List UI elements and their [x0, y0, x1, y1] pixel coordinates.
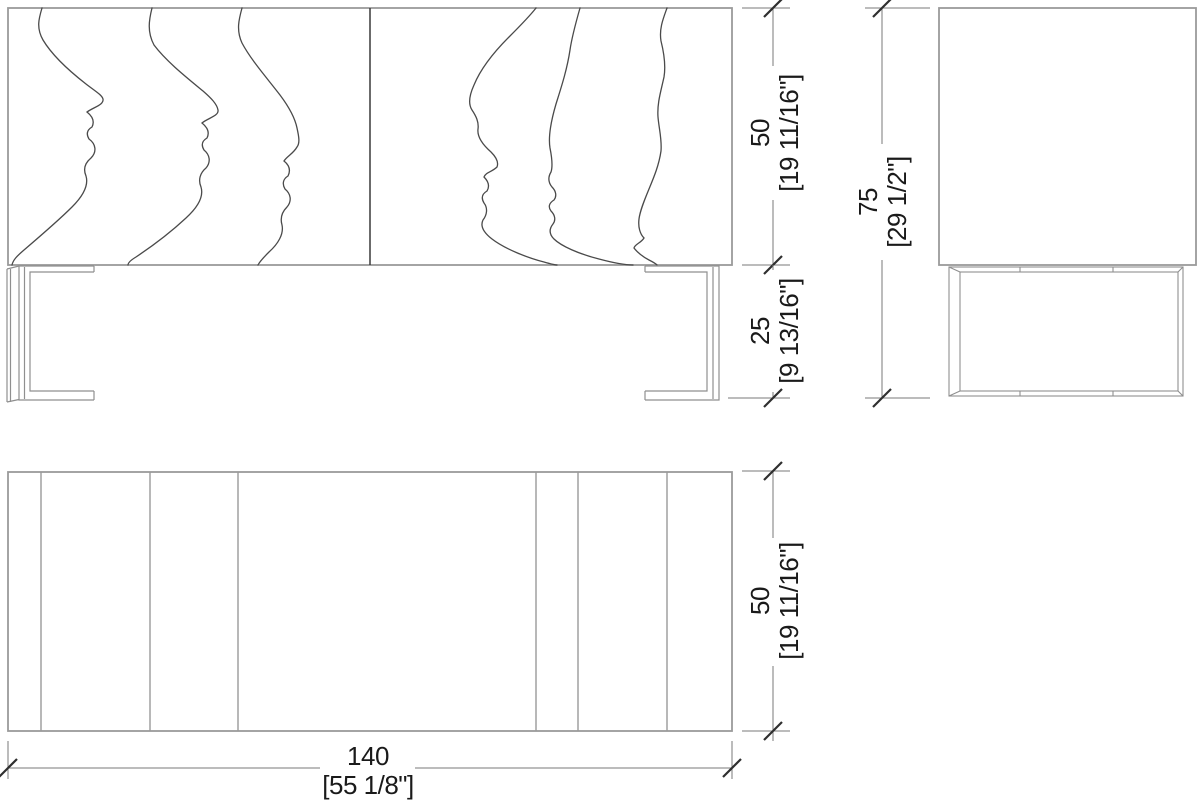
right-leg-outer-contour [645, 266, 719, 400]
dim-total-height: 75 [29 1/2"] [853, 0, 930, 407]
face-profile-curve-6 [634, 8, 667, 265]
dim-depth-imperial: [19 11/16"] [774, 542, 804, 659]
side-body-outline [939, 8, 1196, 265]
face-profile-curve-4 [470, 8, 557, 265]
side-leg-frame-joints [1020, 267, 1113, 396]
front-right-leg [645, 266, 719, 400]
technical-drawing-canvas: 50 [19 11/16"] 25 [9 13/16"] 75 [29 1/2"… [0, 0, 1200, 800]
dim-cabinet-height-metric: 50 [745, 119, 775, 147]
dim-cabinet-height: 50 [19 11/16"] [742, 0, 804, 274]
dim-leg-height-imperial: [9 13/16"] [774, 278, 804, 383]
dim-leg-height: 25 [9 13/16"] [728, 265, 804, 407]
dim-total-height-imperial: [29 1/2"] [882, 156, 912, 247]
dim-total-height-metric: 75 [853, 188, 883, 216]
side-leg-frame-outer [949, 267, 1183, 396]
front-face-carvings [12, 8, 667, 265]
left-leg-top-miter [7, 266, 19, 269]
left-leg-inner-contour [30, 272, 94, 391]
front-left-leg [7, 266, 94, 402]
side-leg-frame [949, 267, 1183, 396]
dim-width-imperial: [55 1/8"] [322, 770, 413, 800]
dim-depth: 50 [19 11/16"] [742, 462, 804, 741]
side-view [939, 8, 1196, 396]
dimensions: 50 [19 11/16"] 25 [9 13/16"] 75 [29 1/2"… [0, 0, 930, 800]
dim-depth-metric: 50 [745, 587, 775, 615]
dim-leg-height-metric: 25 [745, 317, 775, 345]
face-profile-curve-5 [549, 8, 633, 265]
furniture-drawing-svg: 50 [19 11/16"] 25 [9 13/16"] 75 [29 1/2"… [0, 0, 1200, 800]
right-leg-inner-contour [645, 272, 707, 391]
side-leg-frame-inner [960, 272, 1178, 391]
dim-width-metric: 140 [347, 741, 389, 771]
face-profile-curve-3 [239, 8, 299, 265]
left-leg-bottom-miter [7, 400, 19, 403]
dim-cabinet-height-imperial: [19 11/16"] [774, 74, 804, 191]
plan-outline [8, 472, 732, 731]
plan-view [8, 472, 732, 731]
front-view [7, 8, 732, 402]
dim-width: 140 [55 1/8"] [0, 741, 741, 800]
face-profile-curve-1 [12, 8, 103, 265]
side-leg-frame-miters [949, 267, 1183, 396]
face-profile-curve-2 [128, 8, 218, 265]
